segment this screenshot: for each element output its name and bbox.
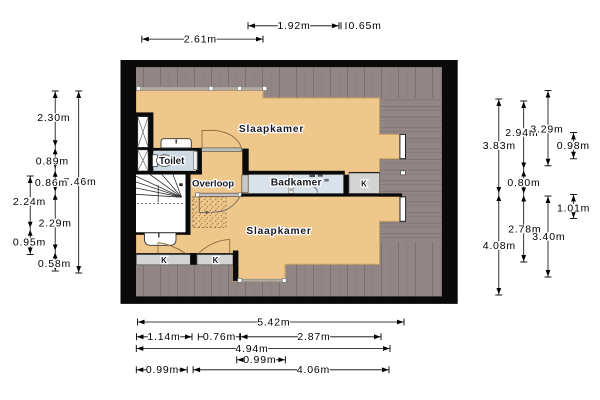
svg-text:Slaapkamer: Slaapkamer: [246, 226, 311, 237]
svg-text:2.30m: 2.30m: [37, 112, 70, 124]
svg-text:0.80m: 0.80m: [507, 177, 540, 189]
svg-text:0.99m: 0.99m: [243, 354, 276, 366]
svg-text:K: K: [213, 256, 219, 265]
svg-text:0.58m: 0.58m: [38, 258, 71, 270]
svg-text:1.92m: 1.92m: [277, 20, 310, 32]
svg-text:2.24m: 2.24m: [13, 196, 46, 208]
svg-text:Toilet: Toilet: [159, 156, 185, 167]
svg-text:3.40m: 3.40m: [532, 231, 565, 243]
svg-text:2.87m: 2.87m: [297, 331, 330, 343]
svg-text:0.95m: 0.95m: [13, 237, 46, 249]
svg-text:4.08m: 4.08m: [483, 240, 516, 252]
svg-text:0.86m: 0.86m: [35, 177, 68, 189]
svg-text:0.76m: 0.76m: [203, 331, 236, 343]
svg-text:0.89m: 0.89m: [36, 155, 69, 167]
svg-text:Slaapkamer: Slaapkamer: [239, 124, 304, 135]
svg-text:7.46m: 7.46m: [63, 176, 96, 188]
svg-text:3.29m: 3.29m: [530, 123, 563, 135]
svg-text:1.01m: 1.01m: [557, 202, 590, 214]
svg-text:0.99m: 0.99m: [146, 364, 179, 376]
svg-text:5.42m: 5.42m: [257, 316, 290, 328]
svg-text:Badkamer: Badkamer: [271, 178, 322, 189]
svg-text:0.65m: 0.65m: [349, 20, 382, 32]
svg-text:2.29m: 2.29m: [39, 217, 72, 229]
svg-text:1.14m: 1.14m: [147, 331, 180, 343]
svg-text:K: K: [161, 256, 167, 265]
svg-text:3.83m: 3.83m: [483, 140, 516, 152]
svg-text:2.61m: 2.61m: [184, 34, 217, 46]
svg-text:4.94m: 4.94m: [235, 343, 268, 355]
svg-text:4.06m: 4.06m: [297, 364, 330, 376]
svg-text:0.98m: 0.98m: [557, 140, 590, 152]
svg-text:K: K: [361, 180, 367, 189]
svg-text:Overloop: Overloop: [192, 178, 234, 189]
